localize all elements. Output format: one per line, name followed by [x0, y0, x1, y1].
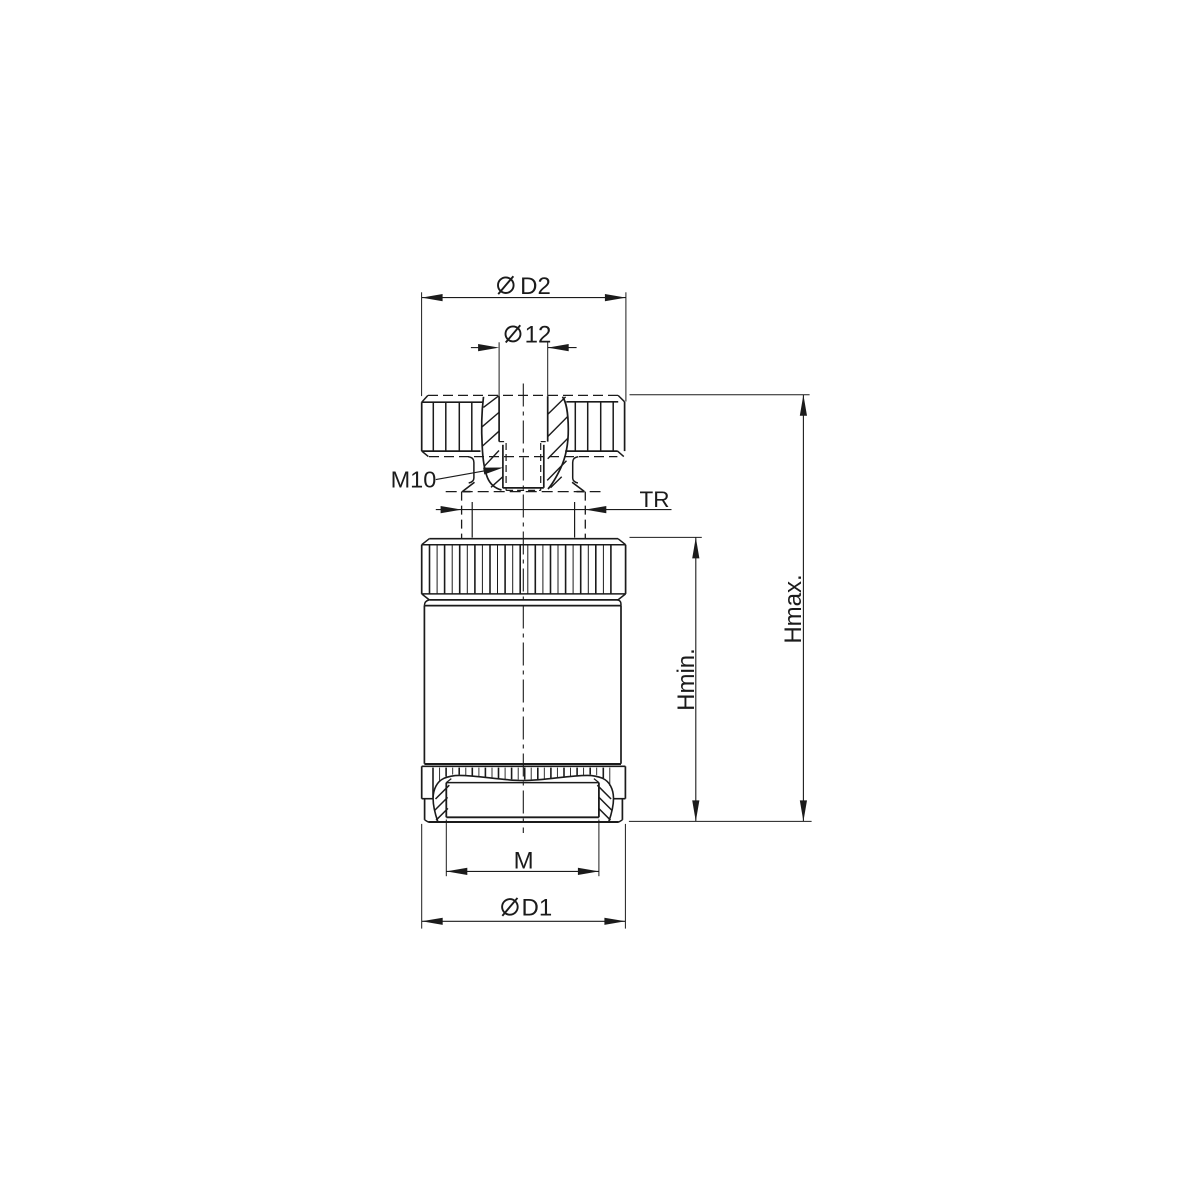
svg-text:Hmax.: Hmax.: [780, 574, 807, 643]
svg-text:Hmin.: Hmin.: [673, 648, 700, 711]
svg-text:M: M: [514, 847, 534, 874]
svg-text:M10: M10: [391, 467, 437, 493]
svg-text:D2: D2: [520, 273, 551, 300]
svg-text:TR: TR: [640, 487, 670, 512]
svg-text:D1: D1: [522, 895, 553, 922]
